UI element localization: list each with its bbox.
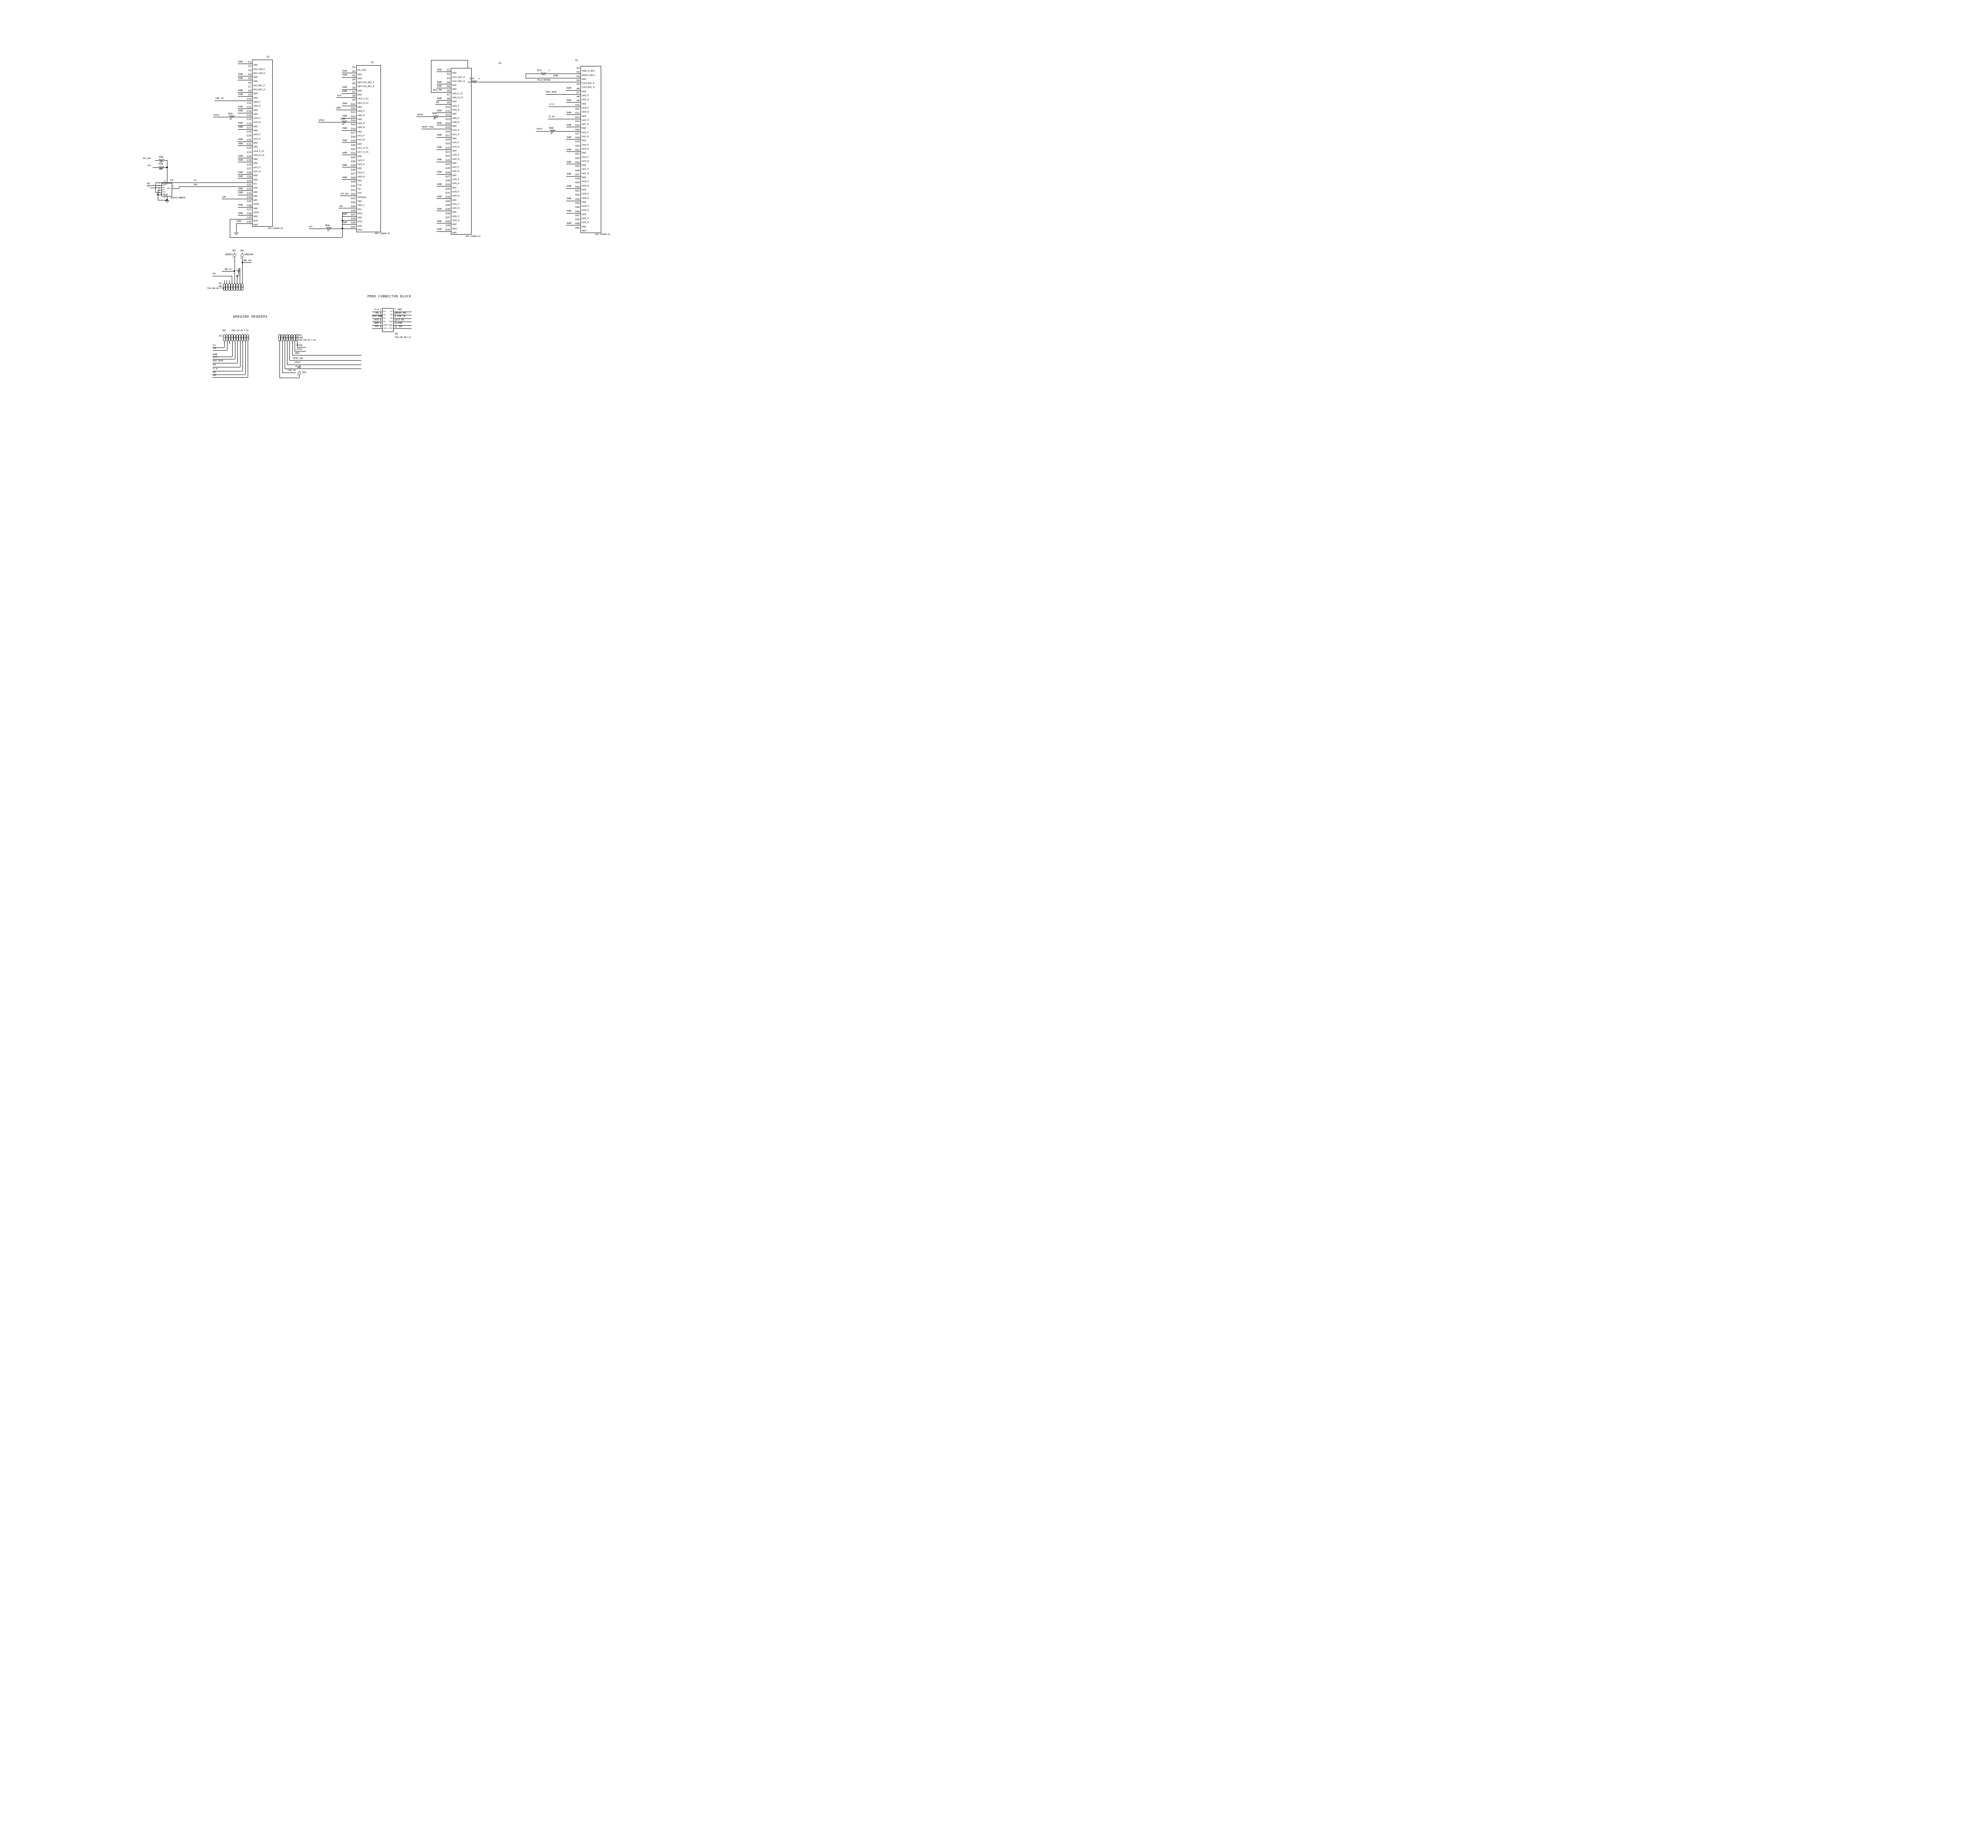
pin-number: C34 (241, 196, 251, 199)
pin-number: G6 (440, 89, 450, 92)
pin-number: C29 (241, 175, 251, 178)
wire (248, 341, 248, 377)
pin-number: C3 (241, 69, 251, 72)
testpoint-label: TP9 (302, 372, 306, 374)
pin-number: G14 (440, 122, 450, 125)
pin-name: LA16_P (452, 142, 459, 144)
pmod-pin-name: P10 (389, 320, 392, 322)
pin-number: H23 (569, 157, 580, 160)
header-pin-number: 3 (228, 337, 231, 338)
header-pin-number: 7 (239, 286, 241, 287)
pin-number: D23 (345, 156, 355, 159)
pin-number: C8 (241, 89, 251, 92)
header-p4-pin-4: 4 (286, 334, 288, 341)
pin-name: DP0_M2C_P (253, 85, 265, 87)
wire (295, 351, 306, 351)
pin-number: G7 (440, 93, 450, 96)
wire (242, 262, 251, 263)
pin-number: C31 (241, 184, 251, 186)
wire (237, 341, 238, 363)
pmod-pin-name: GND (388, 324, 392, 326)
pin-number: D29 (345, 181, 355, 183)
pin-name: LA04_N (582, 111, 589, 113)
pin-name: GND (357, 180, 362, 182)
net-label: 3V3_AUX (143, 158, 151, 160)
wire (213, 375, 245, 375)
resistor-ref: R58 (159, 156, 163, 159)
wire (435, 104, 451, 105)
pin-number: H11 (569, 108, 580, 111)
pin-name: LA32_P (582, 217, 589, 220)
pin-name: CLK1_M2C_N (452, 80, 465, 83)
pin-number: C18 (241, 130, 251, 133)
resistor-ref: R59 (159, 163, 163, 165)
net-label: DGND (553, 75, 558, 77)
pin-name: GND (582, 103, 586, 105)
pin-name: LA14_N (253, 138, 260, 140)
pmod-pin-name: VCC (383, 327, 387, 329)
pin-number: G11 (440, 110, 450, 113)
wire (431, 92, 451, 93)
pin-name: GND (253, 126, 258, 128)
pin-number: H2 (569, 71, 580, 74)
pin-name: GND (357, 217, 362, 219)
pin-number: C21 (241, 143, 251, 146)
testpoint-pin-number: 1 (297, 374, 299, 377)
header-pin-number: 8 (296, 337, 298, 338)
net-label: 3V3 (309, 226, 313, 228)
wire (437, 84, 451, 84)
pin-name: GND (582, 115, 586, 118)
pin-name: GND (452, 150, 456, 152)
pin-name: GND (452, 211, 456, 214)
wire (437, 162, 451, 162)
net-label: GPIO0 (297, 345, 302, 347)
pin-number: H29 (569, 181, 580, 184)
pin-name: LA18_N_CC (253, 154, 264, 157)
pin-name: GND (357, 94, 362, 96)
arduino-headers-title: ARDUINO HEADERS (233, 315, 268, 318)
connector-part: ASP-134604-01 (466, 236, 481, 238)
u4-text: 8 (165, 180, 166, 182)
wire (280, 341, 280, 378)
pin-name: 3P3V (253, 220, 258, 222)
wire (287, 365, 361, 365)
pin-number: H35 (569, 206, 580, 209)
header-p2-pin-8: 8 (241, 283, 243, 291)
resistor-ref: R48 (549, 127, 553, 130)
pin-number: C14 (241, 114, 251, 117)
junction-dot (342, 220, 343, 221)
pin-name: LA29_P (452, 191, 459, 193)
pin-number: H20 (569, 145, 580, 148)
pin-name: GND (253, 158, 258, 161)
wire (236, 223, 237, 232)
pin-name: GND (357, 143, 362, 146)
pin-name: GND (452, 199, 456, 202)
wire (342, 224, 356, 225)
pin-name: LA22_N (452, 170, 459, 173)
wire (229, 280, 230, 283)
pin-number: D24 (345, 160, 355, 163)
pin-number: G35 (440, 208, 450, 211)
pin-name: TMS (357, 200, 362, 203)
net-label: SDA (213, 347, 216, 349)
pin-number: C36 (241, 204, 251, 207)
pin-number: C25 (241, 159, 251, 162)
pin-number: C39 (241, 216, 251, 219)
connector-part: ASP-134604-01 (595, 234, 610, 236)
pin-name: GND (253, 224, 258, 226)
net-label: SYNC_IN (287, 370, 295, 372)
pin-name: VADJ (452, 228, 457, 230)
pin-number: C1 (241, 61, 251, 64)
wire (238, 76, 252, 76)
pin-name: GND (357, 225, 362, 227)
junction-dot (166, 167, 167, 168)
pin-number: H27 (569, 173, 580, 176)
pin-number: D8 (345, 95, 355, 97)
wire (224, 280, 225, 283)
pin-name: LA27_P (253, 167, 260, 169)
pin-number: C40 (241, 221, 251, 223)
net-label: DGND (398, 322, 402, 324)
net-label: SCL (213, 345, 216, 347)
pin-number: G24 (440, 163, 450, 166)
u4-text: E1 (163, 186, 165, 188)
pin-name: LA24_P (582, 181, 589, 183)
pin-name: 3P3V (357, 229, 362, 231)
pin-name: LA14_P (253, 134, 260, 136)
wire (437, 125, 451, 125)
wire (342, 216, 356, 217)
pin-number: C30 (241, 180, 251, 182)
pin-number: H36 (569, 210, 580, 213)
wire (309, 229, 326, 229)
wire (566, 188, 580, 189)
pin-number: H15 (569, 124, 580, 127)
net-label: DRDY (337, 107, 342, 109)
pin-name: 3P3VAUX (357, 196, 366, 199)
pin-number: C28 (241, 171, 251, 174)
header-p4-pin-8: 8 (296, 334, 298, 341)
pin-number: G36 (440, 212, 450, 215)
net-label: GPIO3 (537, 128, 542, 130)
wire (549, 107, 580, 107)
net-label: CS_N (549, 104, 554, 106)
pin-number: D7 (345, 91, 355, 93)
testpoint-ardvin (241, 254, 244, 257)
pin-name: GND (357, 90, 362, 92)
net-label: 3V3 (212, 273, 216, 275)
wire (295, 341, 295, 351)
pin-number: H16 (569, 128, 580, 131)
net-label: SDI (375, 313, 379, 314)
pin-number: D37 (345, 214, 355, 216)
resistor-value: 1K (433, 118, 436, 120)
junction-dot (242, 262, 243, 263)
net-label: GA1 (213, 372, 216, 374)
wire (332, 229, 342, 229)
pin-number: G25 (440, 167, 450, 170)
wire (172, 188, 179, 189)
wire (240, 341, 241, 367)
pin-number: H18 (569, 136, 580, 139)
header-pin-number: 9 (244, 337, 246, 338)
wire (566, 225, 580, 225)
pin-name: LA06_P (253, 101, 260, 103)
pin-number: D6 (345, 87, 355, 89)
header-pin-number: 6 (236, 337, 239, 338)
pin-name: PG_C2M (357, 69, 366, 72)
pin-name: GND (582, 91, 586, 93)
header-dni: DNI (299, 337, 303, 339)
pin-name: GA0 (253, 199, 257, 202)
header-p4-pin-1: 1 (278, 334, 281, 341)
net-label: SDI (436, 102, 440, 104)
wire (431, 60, 431, 92)
pin-name: GND (582, 78, 586, 81)
pmod-pin-name: P7 (390, 311, 392, 313)
pin-number: D10 (345, 103, 355, 106)
wire (179, 186, 252, 187)
pin-number: C26 (241, 163, 251, 166)
pin-number: H32 (569, 194, 580, 196)
junction-dot (342, 228, 343, 229)
pin-number: D21 (345, 148, 355, 151)
header-pin-number: 10 (247, 336, 249, 339)
testpoint-dni: DNI (241, 250, 244, 252)
pin-name: GND (452, 162, 456, 165)
net-label: CS_GN (398, 319, 404, 321)
resistor-ref: R45 (341, 118, 345, 120)
wire (243, 341, 243, 371)
pin-name: TDO (357, 192, 362, 194)
net-label: SCLK (337, 95, 342, 97)
header-p2-pin-2: 2 (225, 283, 228, 291)
pin-number: D4 (345, 78, 355, 81)
header-p4-pin-3: 3 (283, 334, 286, 341)
pin-number: D30 (345, 185, 355, 188)
header-p3-pin-2: 2 (226, 334, 228, 341)
pin-name: GBTCLK0_M2C_P (357, 82, 374, 84)
connector-ref: P1 (499, 62, 501, 65)
wire (566, 164, 580, 164)
pin-name: LA31_N (452, 207, 459, 210)
net-label: GPIO1 (319, 120, 324, 122)
pin-number: D28 (345, 177, 355, 179)
pin-number: C37 (241, 208, 251, 211)
pin-number: H39 (569, 222, 580, 225)
net-label: GPIO2 (295, 362, 300, 364)
wire (213, 367, 240, 367)
pin-number: C16 (241, 122, 251, 125)
pin-number: G31 (440, 192, 450, 194)
pin-name: 3P3V (357, 221, 362, 223)
pin-name: GND (582, 214, 586, 216)
pin-number: C22 (241, 147, 251, 149)
wire (282, 341, 283, 373)
pin-number: C32 (241, 188, 251, 190)
pin-name: GND (452, 88, 456, 91)
header-p3-pin-1: 1 (223, 334, 225, 341)
pin-name: LA15_P (582, 144, 589, 146)
header-pin-number: 1 (278, 337, 281, 338)
pin-number: H33 (569, 198, 580, 201)
u4-text: 4 (164, 197, 165, 199)
header-pin-number: 8 (241, 286, 243, 287)
pin-number: G27 (440, 175, 450, 178)
pin-name: GND (357, 78, 362, 80)
header-p2-pin-5: 5 (233, 283, 236, 291)
header-part: TSM-108-04-T-SV (207, 288, 224, 290)
testpoint-label: ARD5V (225, 254, 233, 256)
pin-number: D36 (345, 210, 355, 212)
pin-number: C5 (241, 77, 251, 80)
pin-number: C20 (241, 139, 251, 142)
header-p4-pin-7: 7 (293, 334, 296, 341)
wire (155, 182, 156, 192)
pin-name: GND (452, 125, 456, 128)
wire (213, 363, 237, 363)
pin-number: G29 (440, 183, 450, 186)
pin-number: C17 (241, 126, 251, 129)
net-label: GA0 (147, 185, 150, 187)
pin-name: LA28_P (582, 193, 589, 195)
wire (437, 198, 451, 199)
wire (372, 328, 382, 329)
pin-number: H8 (569, 95, 580, 98)
wire (153, 167, 159, 168)
pin-name: GND (357, 155, 362, 158)
pin-number: H22 (569, 153, 580, 155)
pin-name: LA08_N (452, 121, 459, 124)
wire (215, 101, 252, 101)
pin-name: GND (253, 208, 258, 210)
wire (342, 179, 356, 180)
net-label: DOUT_RDYB (372, 316, 382, 318)
pin-number: H30 (569, 186, 580, 188)
inversion-bubble-icon (160, 194, 161, 195)
pin-number: C35 (241, 200, 251, 203)
pmod-block-title: PMOD CONNECTOR BLOCK (367, 295, 411, 298)
pin-name: LA21_P (582, 168, 589, 171)
wire (236, 223, 252, 224)
pin-number: D12 (345, 111, 355, 114)
header-pin-number: 5 (233, 337, 236, 338)
wire (167, 160, 167, 183)
pin-number: H17 (569, 132, 580, 135)
pin-number: D33 (345, 197, 355, 200)
pin-number: G26 (440, 171, 450, 174)
wire (421, 129, 451, 129)
net-label: CS_N (213, 368, 217, 370)
pin-number: G13 (440, 118, 450, 121)
resistor-ref: R44 (228, 113, 233, 115)
wire (292, 341, 293, 355)
wire (238, 113, 252, 113)
header-p2-pin-4: 4 (231, 283, 233, 291)
pin-number: C7 (241, 85, 251, 88)
pin-name: LA06_N (253, 105, 260, 107)
resistor-r56 (326, 227, 332, 230)
pin-name: LA19_P (582, 156, 589, 159)
pin-name: LA21_N (582, 173, 589, 175)
wire (213, 350, 227, 351)
header-pin-number: 3 (283, 337, 285, 338)
wire (150, 185, 161, 186)
pin-number: H34 (569, 202, 580, 205)
pin-name: CLK0_M2C_P (582, 82, 594, 85)
testpoint-pin-number: 1 (240, 257, 241, 259)
pin-name: GND (253, 191, 258, 194)
pin-name: GND (452, 113, 456, 115)
pin-number: G5 (440, 85, 450, 88)
connector-ref: P1 (371, 62, 374, 64)
pin-name: LA33_P (452, 215, 459, 218)
pin-name: LA16_N (452, 146, 459, 148)
wire (342, 106, 356, 106)
wire (238, 146, 252, 146)
pin-name: LA32_N (582, 221, 589, 224)
pin-name: LA25_N (452, 182, 459, 185)
net-label: 3V3 (399, 326, 402, 328)
wire (238, 125, 252, 126)
wire (237, 276, 237, 283)
resistor-value: 1K (342, 124, 344, 126)
pin-number: H26 (569, 169, 580, 172)
wire (342, 142, 356, 143)
pin-name: GND (253, 113, 258, 116)
pin-number: H1 (569, 67, 580, 70)
net-label: GPIO2 (214, 115, 219, 116)
wire (230, 219, 252, 219)
pin-number: H5 (569, 83, 580, 86)
wire (437, 149, 451, 150)
pin-number: C2 (241, 65, 251, 68)
pin-name: LA17_N_CC (357, 151, 369, 153)
junction-dot (234, 270, 235, 272)
wire (150, 188, 161, 188)
net-label: DNI (159, 169, 163, 171)
wire (566, 90, 580, 91)
net-label: SDI (213, 364, 216, 366)
resistor-ref: R13 (537, 70, 542, 72)
wire (238, 207, 252, 208)
u4-text: E2 (163, 188, 165, 190)
wire (566, 102, 580, 103)
header-pin-number: 2 (225, 286, 228, 287)
net-label: RESET_ADC (396, 313, 406, 314)
pin-number: H21 (569, 149, 580, 151)
wire (342, 220, 356, 221)
pin-number: G19 (440, 142, 450, 145)
pin-name: CLK0_M2C_N (582, 86, 594, 89)
wire (548, 119, 580, 119)
pin-number: G4 (440, 81, 450, 84)
pin-number: D18 (345, 136, 355, 138)
pin-name: LA17_P_CC (357, 147, 369, 149)
wire (232, 276, 232, 284)
wire (213, 359, 235, 359)
pin-name: VREF_A_M2C (582, 70, 595, 72)
net-label: DRDY (295, 353, 300, 355)
header-pin-number: 6 (291, 337, 293, 338)
u4-text: 7 (159, 192, 160, 194)
pin-number: G9 (440, 101, 450, 104)
pin-number: C23 (241, 151, 251, 154)
pin-number: D19 (345, 140, 355, 142)
